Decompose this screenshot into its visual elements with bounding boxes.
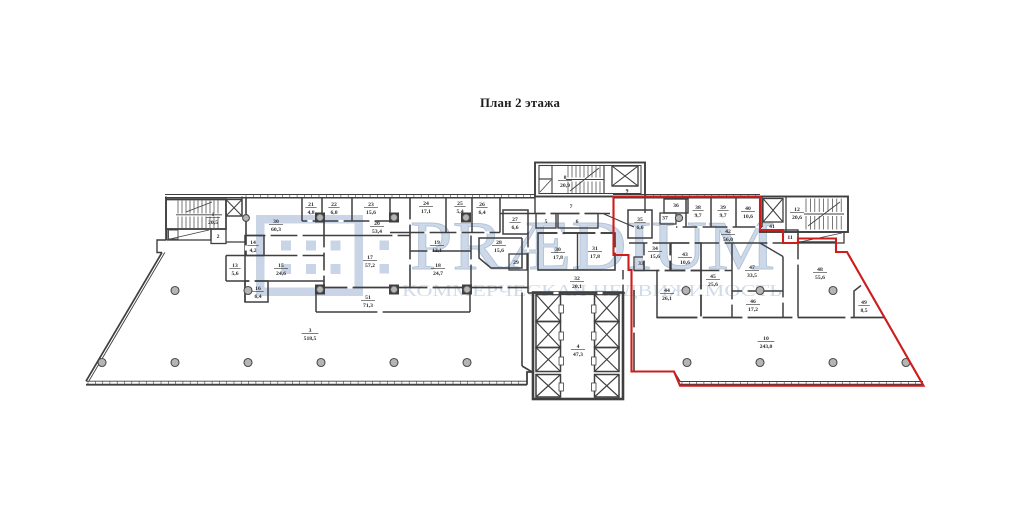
svg-text:6,6: 6,6	[511, 225, 518, 231]
svg-text:20,1: 20,1	[572, 284, 582, 290]
svg-text:28: 28	[496, 240, 502, 246]
svg-text:33: 33	[638, 261, 644, 267]
svg-text:7: 7	[570, 204, 573, 210]
svg-text:9: 9	[626, 189, 629, 195]
svg-text:4: 4	[577, 344, 580, 350]
svg-text:46: 46	[750, 299, 756, 305]
svg-text:17,1: 17,1	[421, 209, 431, 215]
svg-text:53,4: 53,4	[372, 229, 382, 235]
svg-text:23: 23	[368, 202, 374, 208]
svg-text:25,6: 25,6	[708, 282, 718, 288]
svg-text:6,0: 6,0	[330, 210, 337, 216]
svg-text:4,2: 4,2	[249, 248, 256, 254]
svg-text:45: 45	[710, 274, 716, 280]
svg-text:9,7: 9,7	[694, 213, 701, 219]
svg-text:30: 30	[273, 219, 279, 225]
svg-text:60,3: 60,3	[271, 227, 281, 233]
svg-text:10,6: 10,6	[680, 260, 690, 266]
svg-text:12: 12	[794, 207, 800, 213]
svg-text:29: 29	[513, 260, 519, 266]
svg-text:41: 41	[769, 224, 775, 230]
svg-text:518,5: 518,5	[304, 336, 317, 342]
svg-text:17,8: 17,8	[590, 254, 600, 260]
svg-text:48: 48	[817, 267, 823, 273]
svg-text:12,1: 12,1	[432, 248, 442, 254]
svg-text:21: 21	[308, 202, 314, 208]
svg-text:10: 10	[763, 336, 769, 342]
svg-text:17,8: 17,8	[553, 255, 563, 261]
svg-text:32: 32	[574, 276, 580, 282]
svg-text:15: 15	[278, 263, 284, 269]
svg-text:24,7: 24,7	[433, 271, 443, 277]
svg-text:17: 17	[367, 255, 373, 261]
svg-text:5,6: 5,6	[231, 271, 238, 277]
svg-text:6: 6	[576, 219, 579, 225]
svg-text:39: 39	[720, 205, 726, 211]
svg-text:24,6: 24,6	[276, 271, 286, 277]
svg-text:71,3: 71,3	[363, 303, 373, 309]
svg-text:1: 1	[212, 212, 215, 218]
svg-text:6,4: 6,4	[254, 294, 261, 300]
svg-text:14: 14	[250, 240, 256, 246]
svg-text:8: 8	[564, 175, 567, 181]
svg-text:15,6: 15,6	[650, 254, 660, 260]
svg-text:26: 26	[479, 202, 485, 208]
svg-text:51: 51	[365, 295, 371, 301]
svg-text:43: 43	[682, 252, 688, 258]
svg-text:18: 18	[435, 263, 441, 269]
svg-text:33,5: 33,5	[747, 273, 757, 279]
svg-text:36: 36	[673, 203, 679, 209]
svg-text:20,6: 20,6	[792, 215, 802, 221]
svg-text:20,5: 20,5	[208, 220, 218, 226]
svg-text:6,4: 6,4	[478, 210, 485, 216]
svg-text:55,6: 55,6	[815, 275, 825, 281]
svg-text:15,6: 15,6	[494, 248, 504, 254]
svg-text:35: 35	[637, 217, 643, 223]
svg-text:47: 47	[749, 265, 755, 271]
svg-text:57,2: 57,2	[365, 263, 375, 269]
svg-text:243,0: 243,0	[760, 344, 773, 350]
svg-text:30: 30	[555, 247, 561, 253]
svg-text:6,6: 6,6	[636, 225, 643, 231]
svg-text:2: 2	[217, 234, 220, 240]
svg-text:17,2: 17,2	[748, 307, 758, 313]
svg-text:4,8: 4,8	[307, 210, 314, 216]
svg-text:47,3: 47,3	[573, 352, 583, 358]
svg-text:37: 37	[662, 216, 668, 222]
svg-text:34: 34	[652, 246, 658, 252]
svg-text:13: 13	[232, 263, 238, 269]
svg-text:9,7: 9,7	[719, 213, 726, 219]
svg-text:44: 44	[664, 288, 670, 294]
svg-text:8,5: 8,5	[860, 308, 867, 314]
svg-text:20,9: 20,9	[560, 183, 570, 189]
svg-text:26,1: 26,1	[662, 296, 672, 302]
svg-text:42: 42	[725, 229, 731, 235]
svg-text:5,4: 5,4	[456, 209, 463, 215]
svg-text:15,6: 15,6	[366, 210, 376, 216]
svg-text:19: 19	[434, 240, 440, 246]
svg-text:16: 16	[255, 286, 261, 292]
svg-text:11: 11	[787, 235, 793, 241]
svg-text:25: 25	[457, 201, 463, 207]
svg-text:22: 22	[331, 202, 337, 208]
svg-text:5: 5	[545, 219, 548, 225]
svg-text:31: 31	[592, 246, 598, 252]
svg-text:27: 27	[512, 217, 518, 223]
svg-text:3: 3	[309, 328, 312, 334]
svg-text:20: 20	[374, 221, 380, 227]
svg-text:56,0: 56,0	[723, 237, 733, 243]
svg-text:10,6: 10,6	[743, 214, 753, 220]
svg-text:38: 38	[695, 205, 701, 211]
svg-text:49: 49	[861, 300, 867, 306]
svg-text:КОММЕРЧЕСКАЯ НЕДВИЖИМОСТЬ: КОММЕРЧЕСКАЯ НЕДВИЖИМОСТЬ	[402, 281, 782, 300]
svg-text:24: 24	[423, 201, 429, 207]
svg-text:40: 40	[745, 206, 751, 212]
svg-text:План 2 этажа: План 2 этажа	[480, 96, 561, 110]
